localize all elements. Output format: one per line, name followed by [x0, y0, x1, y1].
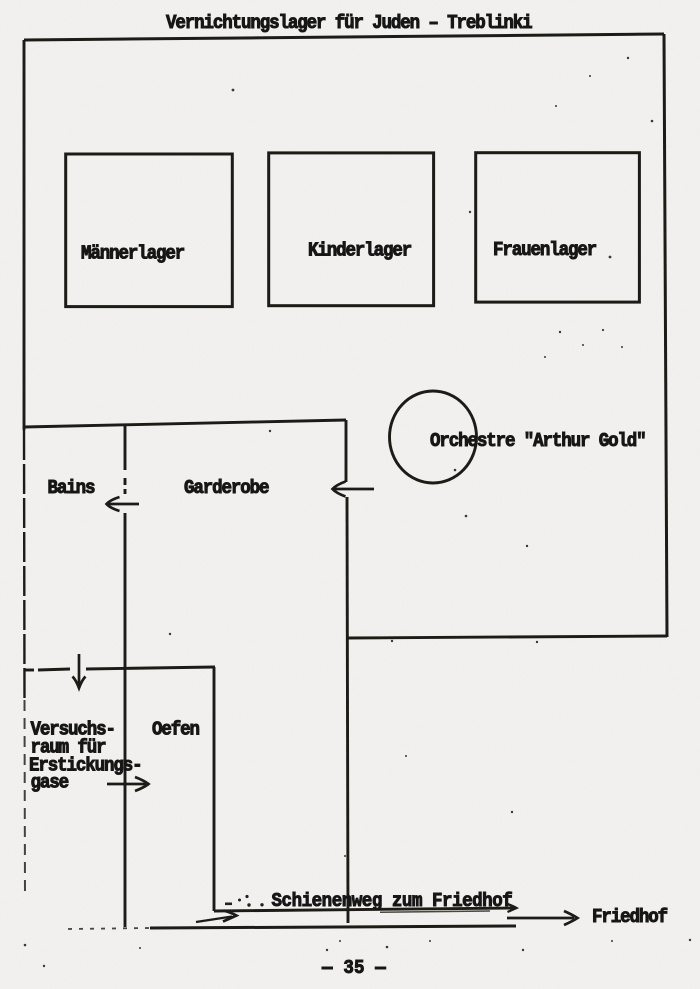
svg-text:Frauenlager: Frauenlager	[493, 239, 596, 261]
svg-text:Friedhof: Friedhof	[592, 906, 668, 928]
svg-text:Vernichtungslager für Juden –: Vernichtungslager für Juden – Treblinki	[166, 12, 532, 34]
svg-text:Oefen: Oefen	[152, 719, 199, 741]
svg-text:gase: gase	[31, 772, 69, 794]
svg-text:Männerlager: Männerlager	[81, 243, 184, 265]
svg-text:Orchestre "Arthur Gold": Orchestre "Arthur Gold"	[430, 430, 646, 452]
svg-text:Kinderlager: Kinderlager	[308, 240, 411, 262]
svg-text:Bains: Bains	[48, 477, 95, 499]
svg-text:Garderobe: Garderobe	[184, 477, 269, 499]
svg-text:Schienenweg zum Friedhof: Schienenweg zum Friedhof	[272, 890, 513, 912]
svg-text:— 35 —: — 35 —	[321, 957, 387, 979]
